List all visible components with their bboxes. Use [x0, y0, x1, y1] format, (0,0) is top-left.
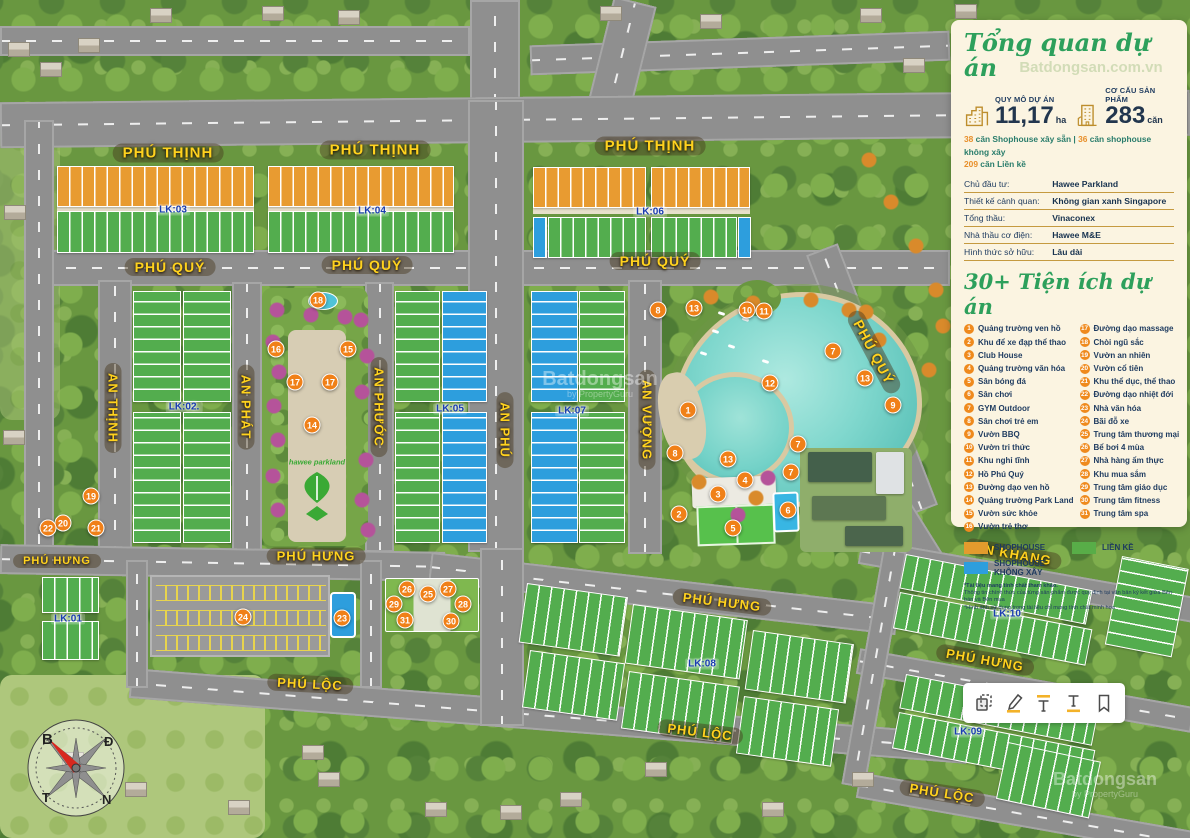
amenity-marker: 29 [386, 596, 403, 613]
amenity-label: Trung tâm thương mại [1094, 430, 1180, 439]
copy-icon [972, 691, 996, 715]
amenity-label: Sân bóng đá [978, 377, 1026, 386]
amenity-label: GYM Outdoor [978, 404, 1030, 413]
house [955, 4, 977, 19]
lot-block [745, 630, 854, 704]
autumn-tree [745, 488, 767, 508]
amenity-label: Bãi đỗ xe [1094, 417, 1130, 426]
amenity-label: Vườn trẻ thơ [978, 522, 1028, 531]
autumn-tree [880, 192, 902, 212]
amenity-label: Vườn tri thức [978, 443, 1030, 452]
lot-block [395, 291, 440, 402]
amenity-item: 28Khu mua sắm [1080, 469, 1180, 479]
amenity-marker: 28 [455, 596, 472, 613]
siteplan-canvas: hawee parkland Batdongsanby PropertyGuru [0, 0, 1190, 838]
stat-value: 11,17ha [995, 104, 1066, 128]
road [360, 560, 382, 688]
disclaimer: *Tài liệu mang tính chất tham khảo.Thông… [964, 583, 1174, 612]
street-label: PHÚ HƯNG [13, 554, 101, 568]
house [500, 805, 522, 820]
legend-item: SHOPHOUSE KHÔNG XÂY [964, 559, 1066, 577]
text-underline-tool-button[interactable] [1060, 689, 1088, 717]
amenity-marker: 25 [420, 586, 437, 603]
amenity-number: 5 [964, 377, 974, 387]
autumn-tree [800, 290, 822, 310]
amenity-number: 25 [1080, 429, 1090, 439]
house [645, 762, 667, 777]
flower-tree [266, 300, 288, 320]
amenity-label: Đường dạo massage [1094, 324, 1174, 333]
amenity-item: 19Vườn an nhiên [1080, 350, 1180, 360]
house [903, 58, 925, 73]
amenity-label: Sân chơi trẻ em [978, 417, 1038, 426]
street-label: AN PHÁT [238, 365, 255, 450]
block-label: LK:02. [166, 402, 203, 413]
house [4, 205, 26, 220]
amenity-marker: 24 [235, 609, 252, 626]
amenity-item: 8Sân chơi trẻ em [964, 416, 1074, 426]
lot-block [519, 583, 628, 657]
amenity-label: Hồ Phú Quý [978, 470, 1024, 479]
street-label: AN PHÚ [497, 392, 514, 468]
amenity-number: 26 [1080, 443, 1090, 453]
house [852, 772, 874, 787]
amenity-marker: 30 [443, 613, 460, 630]
house [302, 745, 324, 760]
house [860, 8, 882, 23]
detail-row: Thiết kế cảnh quan:Không gian xanh Singa… [964, 193, 1174, 210]
stat-value: 283căn [1105, 104, 1174, 128]
amenity-number: 19 [1080, 350, 1090, 360]
legend-label: SHOPHOUSE [994, 543, 1045, 552]
amenity-number: 20 [1080, 364, 1090, 374]
amenity-item: 7GYM Outdoor [964, 403, 1074, 413]
street-label: PHÚ QUÝ [610, 252, 701, 270]
flower-tree [267, 500, 289, 520]
compass-rose: B Đ T N [20, 712, 132, 824]
amenity-marker: 7 [790, 436, 807, 453]
amenity-item: 31Trung tâm spa [1080, 509, 1180, 519]
lot-block [57, 166, 254, 207]
amenity-label: Khu nghỉ tĩnh [978, 456, 1030, 465]
amenity-item: 12Hồ Phú Quý [964, 469, 1074, 479]
amenities-title: 30+ Tiện ích dự án [964, 269, 1174, 319]
amenity-number: 21 [1080, 377, 1090, 387]
road [470, 0, 520, 104]
amenity-label: Trung tâm fitness [1094, 496, 1161, 505]
amenity-marker: 3 [710, 486, 727, 503]
amenity-number: 7 [964, 403, 974, 413]
amenity-marker: 8 [650, 302, 667, 319]
flower-tree [267, 430, 289, 450]
lot-block [531, 412, 578, 543]
amenity-label: Club House [978, 351, 1022, 360]
copy-tool-button[interactable] [970, 689, 998, 717]
amenity-marker: 18 [310, 292, 327, 309]
detail-label: Hình thức sở hữu: [964, 247, 1052, 257]
amenity-label: Đường dạo nhiệt đới [1094, 390, 1174, 399]
autumn-tree [858, 150, 880, 170]
legend-label: LIỀN KỀ [1102, 543, 1134, 552]
compass-east-label: Đ [104, 734, 113, 749]
amenity-marker: 13 [720, 451, 737, 468]
building [845, 526, 903, 546]
block-label: LK:08 [685, 659, 719, 670]
lot-block [579, 291, 625, 402]
detail-label: Thiết kế cảnh quan: [964, 196, 1052, 206]
house [228, 800, 250, 815]
disclaimer-line: Thông tin chính thức của từng sản phẩm đ… [964, 590, 1174, 605]
amenity-label: Trung tâm giáo dục [1094, 483, 1168, 492]
amenity-marker: 20 [55, 515, 72, 532]
amenity-marker: 9 [885, 397, 902, 414]
amenity-item: 20Vườn cổ tiên [1080, 364, 1180, 374]
detail-value: Lâu dài [1052, 247, 1174, 257]
amenity-marker: 11 [756, 303, 773, 320]
flower-tree [334, 307, 356, 327]
detail-label: Nhà thầu cơ điện: [964, 230, 1052, 240]
amenity-marker: 7 [825, 343, 842, 360]
house [560, 792, 582, 807]
amenity-label: Đường dạo ven hồ [978, 483, 1049, 492]
lot-block [533, 217, 547, 258]
amenity-number: 18 [1080, 337, 1090, 347]
amenity-marker: 5 [725, 520, 742, 537]
detail-row: Tổng thầu:Vinaconex [964, 210, 1174, 227]
lot-block [651, 167, 750, 208]
lot-block [133, 291, 181, 402]
flower-tree [351, 490, 373, 510]
panel-title: Tổng quan dự án [964, 30, 1174, 80]
amenity-item: 15Vườn sức khỏe [964, 509, 1074, 519]
amenity-marker: 15 [340, 341, 357, 358]
block-label: LK:03 [156, 205, 190, 216]
detail-label: Chủ đầu tư: [964, 179, 1052, 189]
amenity-number: 6 [964, 390, 974, 400]
amenity-number: 16 [964, 522, 974, 532]
compass-north-label: B [42, 731, 53, 748]
compass-west-label: T [42, 790, 50, 805]
street-label: AN VƯỢNG [639, 370, 656, 470]
block-label: LK:04 [355, 206, 389, 217]
project-stats: QUY MÔ DỰ ÁN 11,17ha CƠ CẤU SẢN PHẨM 283… [964, 86, 1174, 128]
road [24, 120, 54, 570]
amenity-label: Khu mua sắm [1094, 470, 1146, 479]
road [480, 548, 524, 726]
amenity-item: 10Vườn tri thức [964, 443, 1074, 453]
house [262, 6, 284, 21]
project-overview-panel: Batdongsan.com.vn Tổng quan dự án QUY MÔ… [951, 20, 1187, 527]
detail-row: Nhà thầu cơ điện:Hawee M&E [964, 227, 1174, 244]
amenity-item: 25Trung tâm thương mại [1080, 429, 1180, 439]
amenity-item: 26Bể bơi 4 mùa [1080, 443, 1180, 453]
building [808, 452, 872, 482]
text-underline-icon [1062, 691, 1086, 715]
detail-value: Hawee M&E [1052, 230, 1174, 240]
amenity-marker: 13 [686, 300, 703, 317]
amenity-marker: 1 [680, 402, 697, 419]
amenity-number: 23 [1080, 403, 1090, 413]
amenity-number: 29 [1080, 482, 1090, 492]
product-mix: 38 căn Shophouse xây sẵn | 36 căn shopho… [964, 133, 1174, 170]
street-label: PHÚ THỊNH [320, 141, 431, 160]
bookmark-icon [1092, 691, 1116, 715]
city-skyline-icon [964, 102, 990, 128]
lot-block [133, 412, 181, 543]
lot-block [395, 412, 440, 543]
autumn-tree [700, 287, 722, 307]
building [876, 452, 904, 494]
house [700, 14, 722, 29]
amenity-item: 29Trung tâm giáo dục [1080, 482, 1180, 492]
amenity-marker: 10 [739, 302, 756, 319]
house [3, 430, 25, 445]
amenity-number: 24 [1080, 416, 1090, 426]
highlight-pen-tool-button[interactable] [1000, 689, 1028, 717]
amenities-list: 1Quảng trường ven hồ2Khu để xe đạp thể t… [964, 324, 1174, 535]
amenity-item: 18Chòi ngũ sắc [1080, 337, 1180, 347]
street-label: AN THỊNH [105, 363, 122, 453]
lot-block [57, 211, 254, 253]
block-label: LK:05 [433, 404, 467, 415]
amenity-item: 4Quảng trường văn hóa [964, 364, 1074, 374]
amenity-number: 1 [964, 324, 974, 334]
annotation-toolbar [963, 683, 1125, 723]
lot-block [42, 621, 99, 660]
amenity-marker: 12 [762, 375, 779, 392]
street-label: PHÚ HƯNG [267, 548, 366, 565]
amenity-item: 17Đường dạo massage [1080, 324, 1180, 334]
legend-swatch [964, 542, 988, 554]
amenity-number: 15 [964, 509, 974, 519]
house [762, 802, 784, 817]
lot-block [533, 167, 646, 208]
legend-swatch [1072, 542, 1096, 554]
flower-tree [263, 396, 285, 416]
amenity-number: 4 [964, 364, 974, 374]
street-label: PHÚ THỊNH [113, 144, 224, 163]
map-legend: SHOPHOUSELIỀN KỀSHOPHOUSE KHÔNG XÂY [964, 542, 1174, 577]
lot-block [442, 412, 487, 543]
amenity-item: 21Khu thể dục, thể thao [1080, 377, 1180, 387]
amenity-item: 23Nhà văn hóa [1080, 403, 1180, 413]
detail-row: Hình thức sở hữu:Lâu dài [964, 244, 1174, 261]
amenity-marker: 6 [780, 502, 797, 519]
amenity-marker: 19 [83, 488, 100, 505]
legend-swatch [964, 562, 988, 574]
amenity-marker: 14 [304, 417, 321, 434]
amenity-label: Vườn sức khỏe [978, 509, 1038, 518]
amenity-item: 22Đường dạo nhiệt đới [1080, 390, 1180, 400]
amenity-number: 30 [1080, 495, 1090, 505]
amenity-marker: 7 [783, 464, 800, 481]
legend-item: LIỀN KỀ [1072, 542, 1174, 554]
amenity-number: 10 [964, 443, 974, 453]
flower-tree [357, 520, 379, 540]
amenity-label: Chòi ngũ sắc [1094, 338, 1144, 347]
amenity-item: 11Khu nghỉ tĩnh [964, 456, 1074, 466]
highlight-pen-icon [1002, 691, 1026, 715]
autumn-tree [688, 472, 710, 492]
block-label: LK:06 [633, 207, 667, 218]
amenity-number: 31 [1080, 509, 1090, 519]
amenity-number: 22 [1080, 390, 1090, 400]
amenity-marker: 21 [88, 520, 105, 537]
house [40, 62, 62, 77]
amenity-label: Bể bơi 4 mùa [1094, 443, 1145, 452]
project-logo-text: hawee parkland [289, 458, 345, 467]
amenity-item: 2Khu để xe đạp thể thao [964, 337, 1074, 347]
detail-value: Hawee Parkland [1052, 179, 1174, 189]
amenity-item: 30Trung tâm fitness [1080, 495, 1180, 505]
amenity-marker: 4 [737, 472, 754, 489]
road [0, 26, 470, 56]
amenity-label: Vườn an nhiên [1094, 351, 1151, 360]
boat [718, 311, 726, 316]
block-label: LK:09 [951, 727, 985, 738]
building-icon [1074, 102, 1100, 128]
road [530, 31, 951, 76]
amenity-marker: 2 [671, 506, 688, 523]
project-logo-leaf-icon [297, 470, 337, 522]
amenity-label: Khu để xe đạp thể thao [978, 338, 1066, 347]
amenity-label: Trung tâm spa [1094, 509, 1149, 518]
street-label: AN PHƯỚC [371, 357, 388, 457]
house [425, 802, 447, 817]
street-label: PHÚ QUÝ [125, 258, 216, 276]
text-highlight-tool-button[interactable] [1030, 689, 1058, 717]
amenity-number: 2 [964, 337, 974, 347]
amenity-number: 17 [1080, 324, 1090, 334]
amenity-label: Vườn cổ tiên [1094, 364, 1144, 373]
amenity-number: 13 [964, 482, 974, 492]
bookmark-tool-button[interactable] [1090, 689, 1118, 717]
amenity-number: 3 [964, 350, 974, 360]
detail-value: Không gian xanh Singapore [1052, 196, 1174, 206]
block-label: LK:01 [51, 614, 85, 625]
amenity-label: Vườn BBQ [978, 430, 1020, 439]
amenity-label: Quảng trường ven hồ [978, 324, 1061, 333]
lot-block [268, 211, 454, 253]
autumn-tree [925, 280, 947, 300]
amenity-number: 27 [1080, 456, 1090, 466]
amenity-number: 8 [964, 416, 974, 426]
lot-block [183, 291, 231, 402]
street-label: PHÚ THỊNH [595, 137, 706, 156]
amenity-marker: 27 [440, 581, 457, 598]
detail-row: Chủ đầu tư:Hawee Parkland [964, 176, 1174, 193]
house [600, 6, 622, 21]
amenity-item: 1Quảng trường ven hồ [964, 324, 1074, 334]
amenity-marker: 8 [667, 445, 684, 462]
detail-label: Tổng thầu: [964, 213, 1052, 223]
stat-products: CƠ CẤU SẢN PHẨM 283căn [1074, 86, 1174, 128]
amenity-item: 5Sân bóng đá [964, 377, 1074, 387]
lot-block [738, 217, 751, 258]
stat-scale: QUY MÔ DỰ ÁN 11,17ha [964, 86, 1066, 128]
amenity-item: 24Bãi đỗ xe [1080, 416, 1180, 426]
lot-block [183, 412, 231, 543]
amenity-marker: 16 [268, 341, 285, 358]
amenity-label: Quảng trường văn hóa [978, 364, 1065, 373]
amenity-number: 9 [964, 429, 974, 439]
flower-tree [262, 466, 284, 486]
house [78, 38, 100, 53]
amenity-label: Khu thể dục, thể thao [1094, 377, 1176, 386]
building [812, 496, 886, 520]
amenity-item: 13Đường dạo ven hồ [964, 482, 1074, 492]
amenity-item: 27Nhà hàng ẩm thực [1080, 456, 1180, 466]
compass-south-label: N [102, 792, 111, 807]
amenity-marker: 13 [857, 370, 874, 387]
house [8, 42, 30, 57]
lot-block [736, 696, 839, 767]
amenity-item: 9Vườn BBQ [964, 429, 1074, 439]
amenity-marker: 22 [40, 520, 57, 537]
amenity-marker: 17 [322, 374, 339, 391]
lot-block [268, 166, 454, 207]
amenity-marker: 31 [397, 612, 414, 629]
legend-item: SHOPHOUSE [964, 542, 1066, 554]
disclaimer-line: *Hình ảnh sử dụng trong tài liệu chỉ man… [964, 605, 1174, 612]
amenity-label: Nhà hàng ẩm thực [1094, 456, 1164, 465]
amenity-number: 14 [964, 495, 974, 505]
autumn-tree [918, 360, 940, 380]
amenity-number: 11 [964, 456, 974, 466]
house [150, 8, 172, 23]
amenity-item: 6Sân chơi [964, 390, 1074, 400]
amenity-label: Quảng trường Park Land [978, 496, 1074, 505]
amenity-item: 3Club House [964, 350, 1074, 360]
flower-tree [757, 468, 779, 488]
amenity-marker: 23 [334, 610, 351, 627]
amenity-marker: 17 [287, 374, 304, 391]
amenity-item: 16Vườn trẻ thơ [964, 522, 1074, 532]
text-highlight-icon [1032, 691, 1056, 715]
road [126, 560, 148, 688]
lot-block [579, 412, 625, 543]
detail-value: Vinaconex [1052, 213, 1174, 223]
house [338, 10, 360, 25]
lot-block [42, 577, 99, 613]
amenity-label: Sân chơi [978, 390, 1012, 399]
amenity-number: 12 [964, 469, 974, 479]
legend-label: SHOPHOUSE KHÔNG XÂY [994, 559, 1066, 577]
block-label: LK:07 [555, 406, 589, 417]
amenity-label: Nhà văn hóa [1094, 404, 1142, 413]
street-label: PHÚ QUÝ [322, 256, 413, 274]
amenity-marker: 26 [399, 581, 416, 598]
autumn-tree [905, 236, 927, 256]
house [318, 772, 340, 787]
lot-block [531, 291, 578, 402]
amenity-number: 28 [1080, 469, 1090, 479]
project-details-table: Chủ đầu tư:Hawee ParklandThiết kế cảnh q… [964, 176, 1174, 261]
lot-block [442, 291, 487, 402]
amenity-item: 14Quảng trường Park Land [964, 495, 1074, 505]
